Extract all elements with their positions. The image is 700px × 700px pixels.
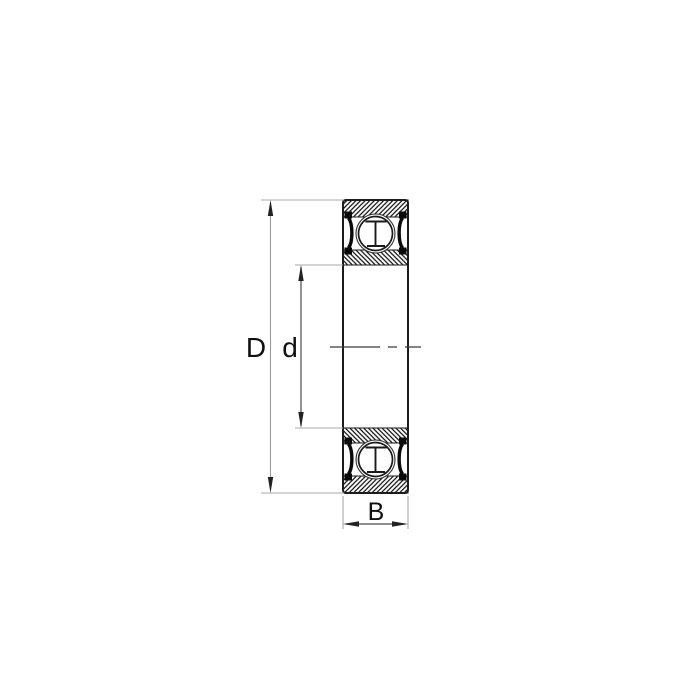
seal-bottom-right (399, 438, 407, 481)
drawing-canvas: D d B (0, 0, 700, 700)
arrowhead-D-down (268, 477, 273, 493)
label-bore-diameter: d (282, 332, 298, 363)
seal-top-left (345, 212, 353, 255)
bearing-bottom-section (343, 428, 408, 493)
label-width: B (368, 498, 385, 526)
label-outer-diameter: D (246, 332, 266, 363)
arrowhead-d-down (298, 412, 303, 428)
dimension-width: B (343, 496, 408, 529)
arrowhead-B-right (392, 521, 408, 526)
seal-bottom-left (345, 438, 353, 481)
arrowhead-B-left (343, 521, 359, 526)
bearing-drawing: D d B (0, 0, 700, 700)
arrowhead-D-up (268, 200, 273, 216)
bearing-top-section (343, 200, 408, 265)
arrowhead-d-up (298, 265, 303, 281)
seal-top-right (399, 212, 407, 255)
